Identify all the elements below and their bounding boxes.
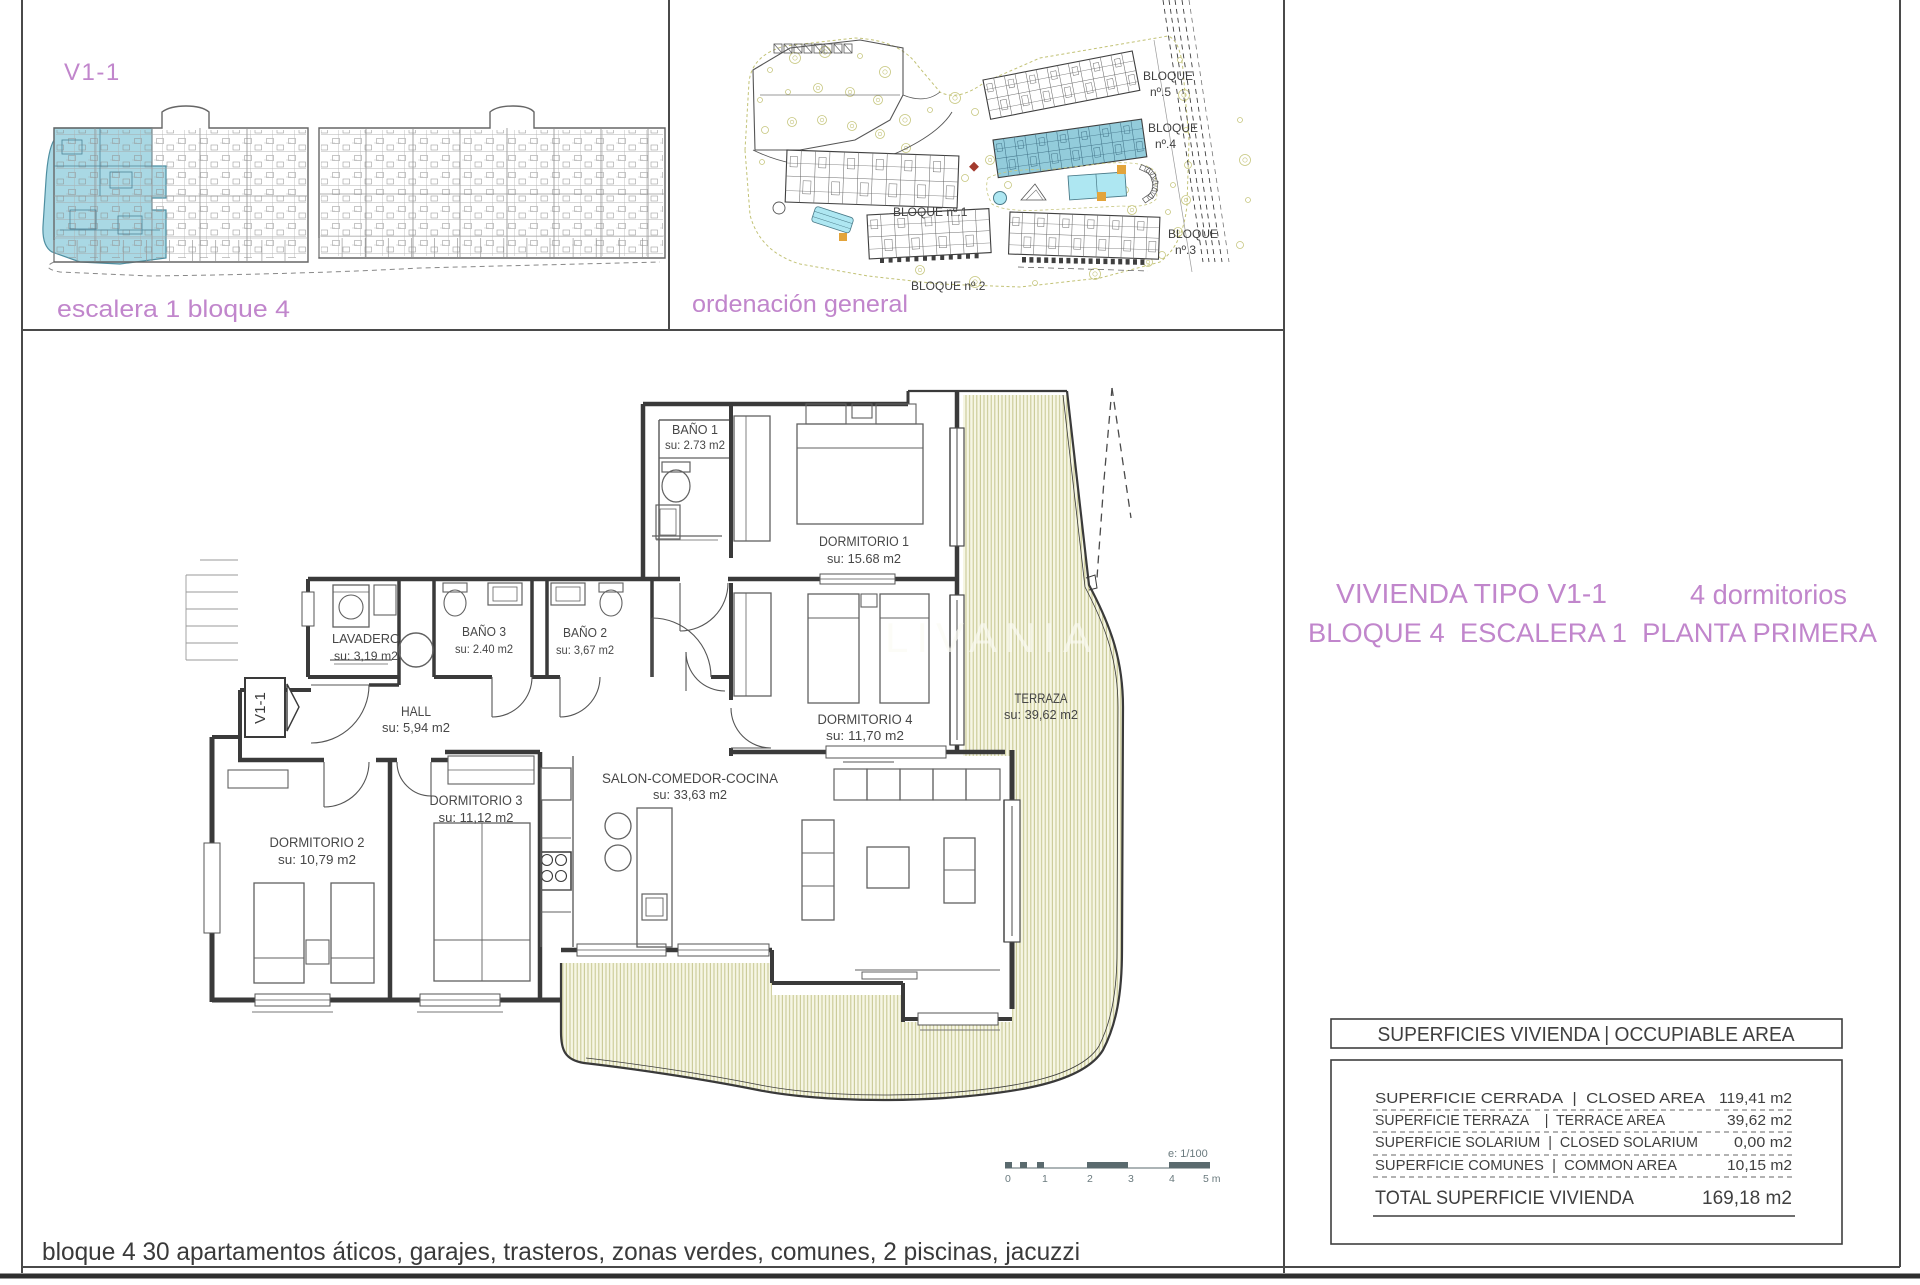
svg-text:SUPERFICIE COMUNES | COMMON: SUPERFICIE COMUNES | COMMON AREA (1375, 1157, 1677, 1174)
svg-text:BLOQUE nº.2: BLOQUE nº.2 (911, 279, 986, 293)
svg-text:LIVANIA: LIVANIA (885, 614, 1099, 661)
svg-text:su: 15.68 m2: su: 15.68 m2 (827, 551, 901, 566)
svg-text:su: 2.40 m2: su: 2.40 m2 (455, 642, 513, 656)
svg-text:su: 39,62 m2: su: 39,62 m2 (1004, 707, 1078, 722)
svg-text:ordenación general: ordenación general (692, 291, 908, 318)
svg-text:4: 4 (1169, 1173, 1175, 1185)
svg-text:su: 10,79 m2: su: 10,79 m2 (278, 852, 356, 867)
svg-text:su: 11,70 m2: su: 11,70 m2 (826, 728, 904, 743)
svg-text:BLOQUE: BLOQUE (1168, 227, 1218, 241)
svg-text:LAVADERO: LAVADERO (332, 632, 400, 646)
svg-text:su: 3,67 m2: su: 3,67 m2 (556, 643, 614, 657)
svg-text:1: 1 (1042, 1173, 1048, 1185)
svg-text:169,18 m2: 169,18 m2 (1702, 1188, 1792, 1209)
svg-text:su: 11,12 m2: su: 11,12 m2 (439, 810, 514, 825)
svg-text:4 dormitorios: 4 dormitorios (1690, 579, 1847, 610)
svg-text:su: 5,94 m2: su: 5,94 m2 (382, 720, 450, 735)
svg-text:nº.4: nº.4 (1155, 137, 1176, 151)
svg-text:TERRAZA: TERRAZA (1015, 691, 1068, 706)
svg-text:DORMITORIO 2: DORMITORIO 2 (270, 835, 365, 850)
svg-text:e: 1/100: e: 1/100 (1168, 1148, 1208, 1160)
svg-text:39,62 m2: 39,62 m2 (1727, 1112, 1792, 1129)
svg-text:su: 33,63 m2: su: 33,63 m2 (653, 787, 727, 802)
svg-text:BAÑO 2: BAÑO 2 (563, 626, 607, 640)
svg-text:SUPERFICIES VIVIENDA | OCCUPIA: SUPERFICIES VIVIENDA | OCCUPIABLE AREA (1378, 1024, 1796, 1046)
svg-text:10,15 m2: 10,15 m2 (1727, 1157, 1792, 1174)
svg-text:BAÑO 3: BAÑO 3 (462, 625, 506, 639)
svg-text:119,41 m2: 119,41 m2 (1719, 1090, 1792, 1107)
svg-text:DORMITORIO 3: DORMITORIO 3 (430, 793, 523, 808)
svg-text:BAÑO 1: BAÑO 1 (672, 423, 718, 437)
svg-text:DORMITORIO 1: DORMITORIO 1 (819, 534, 909, 549)
svg-text:2: 2 (1087, 1173, 1093, 1185)
svg-text:su: 3,19 m2: su: 3,19 m2 (334, 649, 398, 663)
svg-text:BLOQUE: BLOQUE (1143, 69, 1193, 83)
svg-text:VIVIENDA TIPO V1-1: VIVIENDA TIPO V1-1 (1336, 578, 1607, 609)
svg-text:SUPERFICIE SOLARIUM | CLOSED: SUPERFICIE SOLARIUM | CLOSED SOLARIUM (1375, 1134, 1698, 1151)
svg-text:DORMITORIO 4: DORMITORIO 4 (818, 712, 913, 727)
svg-text:BLOQUE nº.1: BLOQUE nº.1 (893, 205, 968, 219)
svg-text:0,00 m2: 0,00 m2 (1734, 1134, 1792, 1151)
svg-text:nº.3: nº.3 (1175, 243, 1196, 257)
svg-text:V1-1: V1-1 (64, 59, 121, 86)
svg-text:SALON-COMEDOR-COCINA: SALON-COMEDOR-COCINA (602, 771, 778, 786)
svg-text:3: 3 (1128, 1173, 1134, 1185)
svg-text:escalera 1 bloque 4: escalera 1 bloque 4 (57, 296, 290, 323)
svg-text:TOTAL SUPERFICIE VIVIENDA: TOTAL SUPERFICIE VIVIENDA (1375, 1188, 1634, 1209)
svg-text:BLOQUE: BLOQUE (1148, 121, 1198, 135)
svg-text:SUPERFICIE TERRAZA | TERRA: SUPERFICIE TERRAZA | TERRACE AREA (1375, 1112, 1665, 1129)
svg-text:BLOQUE 4 ESCALERA 1 PLANTA P: BLOQUE 4 ESCALERA 1 PLANTA PRIMERA (1308, 618, 1877, 648)
svg-text:nº.5: nº.5 (1150, 85, 1171, 99)
svg-text:SUPERFICIE CERRADA | CLOSED: SUPERFICIE CERRADA | CLOSED AREA (1375, 1090, 1705, 1107)
svg-text:su: 2.73 m2: su: 2.73 m2 (665, 438, 725, 452)
svg-text:bloque 4 30 apartamentos ático: bloque 4 30 apartamentos áticos, garajes… (42, 1238, 1080, 1266)
svg-text:HALL: HALL (401, 704, 431, 719)
svg-text:V1-1: V1-1 (252, 692, 269, 724)
svg-text:0: 0 (1005, 1173, 1011, 1185)
svg-text:5 m: 5 m (1203, 1173, 1221, 1185)
